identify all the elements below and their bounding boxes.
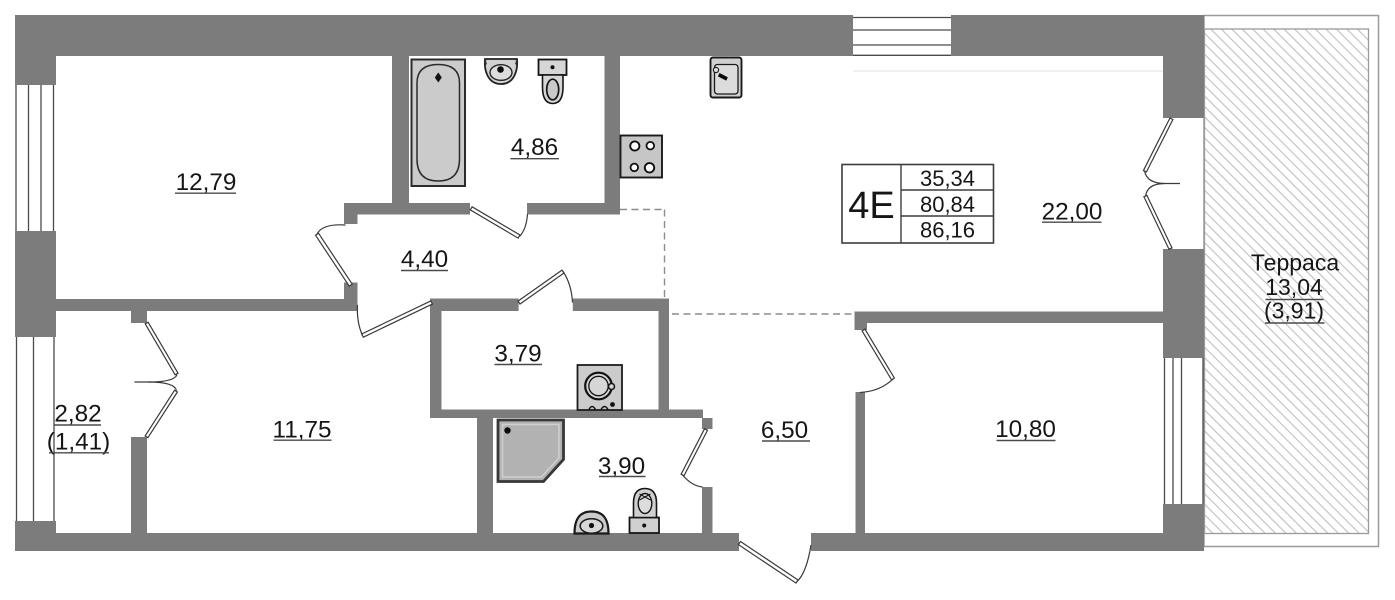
svg-text:6,50: 6,50 xyxy=(761,417,808,444)
svg-text:35,34: 35,34 xyxy=(920,166,975,191)
svg-text:4,40: 4,40 xyxy=(401,246,448,273)
svg-text:Терраса: Терраса xyxy=(1251,250,1339,276)
svg-text:10,80: 10,80 xyxy=(995,416,1056,443)
svg-text:11,75: 11,75 xyxy=(273,417,332,444)
svg-text:(1,41): (1,41) xyxy=(47,429,110,456)
svg-text:22,00: 22,00 xyxy=(1042,198,1103,225)
svg-text:86,16: 86,16 xyxy=(920,218,975,243)
svg-text:2,82: 2,82 xyxy=(54,401,101,428)
svg-text:13,04: 13,04 xyxy=(1265,274,1323,300)
svg-text:(3,91): (3,91) xyxy=(1264,298,1324,324)
svg-text:4E: 4E xyxy=(848,185,894,227)
svg-text:3,79: 3,79 xyxy=(494,341,541,368)
svg-text:4,86: 4,86 xyxy=(511,134,558,161)
svg-text:80,84: 80,84 xyxy=(920,192,975,217)
svg-text:12,79: 12,79 xyxy=(176,169,237,196)
